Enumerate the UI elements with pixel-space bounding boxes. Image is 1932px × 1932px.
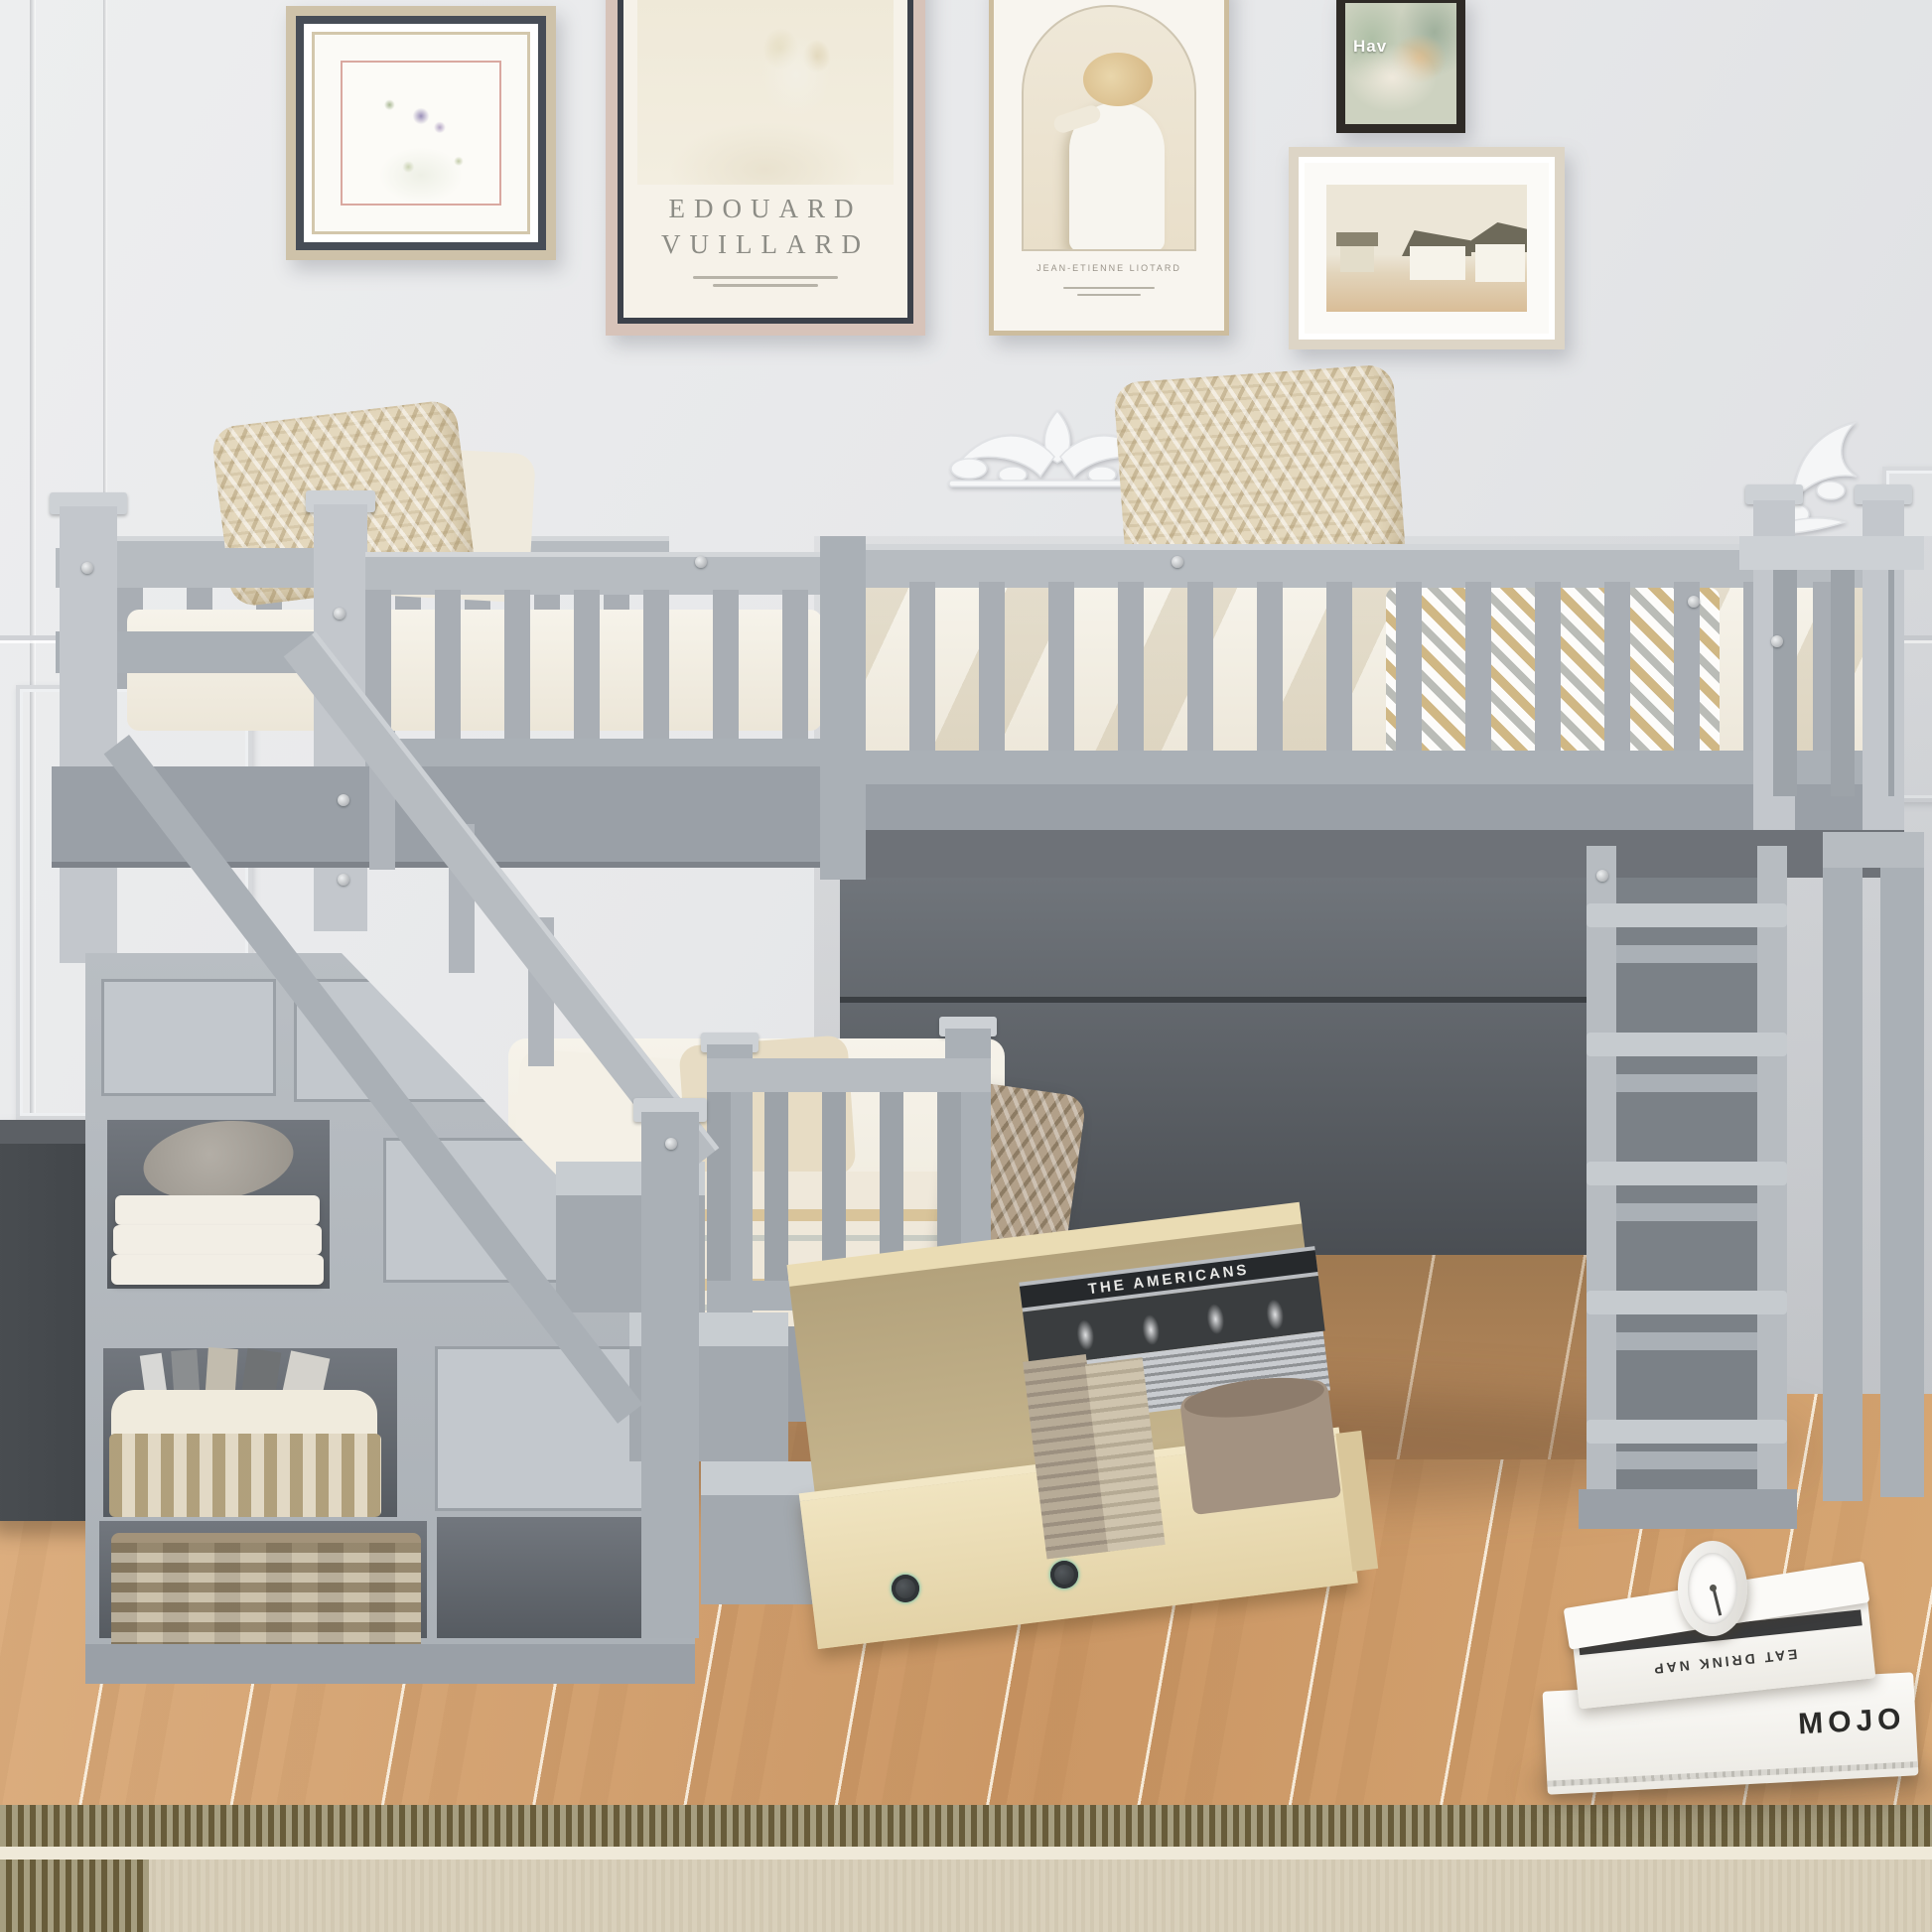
staircase-base-rail	[85, 1644, 699, 1684]
stair-newel-post	[641, 1112, 699, 1638]
frame-mat	[1305, 163, 1549, 334]
stair-cubby-basket	[103, 1348, 397, 1517]
picture-frame-poster: EDOUARD VUILLARD	[606, 0, 925, 336]
folded-towel	[115, 1195, 320, 1225]
rug-field	[0, 1860, 1932, 1932]
headboard-slats	[1773, 570, 1894, 796]
shelf-board	[1616, 1074, 1757, 1092]
shelf-board	[1616, 1203, 1757, 1221]
loft-deck-shadow	[840, 830, 1904, 878]
rug-corner-border	[0, 1860, 149, 1932]
loft-end-leg	[1823, 832, 1863, 1501]
portrait-figure-bonnet	[1083, 53, 1153, 106]
ladder-rung	[1587, 1162, 1787, 1185]
house-roof	[1336, 232, 1378, 246]
flower-vase-artwork	[637, 0, 894, 185]
ladder-rung	[1587, 903, 1787, 927]
loft-end-leg	[1880, 832, 1924, 1497]
village-artwork	[1326, 185, 1527, 312]
screw	[1596, 870, 1608, 882]
shelf-board	[1616, 1451, 1757, 1469]
analog-clock	[1678, 1541, 1747, 1636]
portrait-caption: JEAN-ETIENNE LIOTARD	[994, 263, 1224, 273]
portrait-caption-line	[1077, 294, 1141, 296]
botanical-artwork	[341, 61, 501, 206]
shelf-board	[1616, 945, 1757, 963]
loft-end-rail	[1823, 832, 1924, 868]
bedroom-photo: EDOUARD VUILLARD JEAN-ETIENNE LIOTARD Ha…	[0, 0, 1932, 1932]
rug-border-band	[0, 1805, 1932, 1847]
bottom-book-spine-text: MOJO	[1797, 1703, 1906, 1742]
loft-guardrail-slats	[840, 582, 1904, 753]
portrait-caption-line	[1063, 287, 1155, 289]
clock-center	[1710, 1585, 1717, 1591]
caster-wheel	[892, 1575, 919, 1602]
poster-artist-line2: VUILLARD	[623, 226, 907, 262]
ladder-rung	[1587, 1291, 1787, 1314]
drawer-seam	[840, 997, 1594, 1003]
bunk-front-slats	[365, 590, 832, 739]
screw	[334, 608, 345, 620]
cat-frame-text: Hav	[1353, 37, 1387, 57]
round-container	[1179, 1379, 1342, 1515]
picture-frame-portrait: JEAN-ETIENNE LIOTARD	[989, 0, 1229, 336]
ladder-rung	[1587, 1420, 1787, 1444]
center-post	[820, 536, 866, 880]
arched-portrait-artwork	[1022, 5, 1196, 251]
headboard-top-rail	[1739, 536, 1924, 570]
shelf-tower-base	[1579, 1489, 1797, 1529]
bunk-front-rail-bottom	[365, 739, 832, 768]
rope-basket	[109, 1434, 381, 1517]
screw	[695, 556, 707, 568]
screw	[1771, 635, 1783, 647]
screw	[81, 562, 93, 574]
stair-recessed-panel	[101, 979, 276, 1096]
picture-frame-cat: Hav	[1336, 0, 1465, 133]
house	[1340, 242, 1374, 272]
frame-inner-border	[296, 16, 546, 250]
poster-artist-line1: EDOUARD	[623, 191, 907, 226]
ladder-rung	[1587, 1033, 1787, 1056]
screw	[338, 874, 349, 886]
woven-rug	[0, 1805, 1932, 1932]
stair-cubby-towels	[107, 1120, 330, 1289]
poster-caption-line	[693, 276, 838, 279]
screw	[665, 1138, 677, 1150]
house	[1475, 244, 1525, 282]
poster-caption-line	[713, 284, 818, 287]
screw	[338, 794, 349, 806]
folded-towel	[113, 1225, 322, 1255]
shelf-board	[1616, 1332, 1757, 1350]
screw	[1172, 556, 1183, 568]
picture-frame-botanical	[286, 6, 556, 260]
picture-frame-landscape	[1289, 147, 1565, 349]
loft-guardrail-bottom	[840, 751, 1904, 784]
poster: EDOUARD VUILLARD	[618, 0, 913, 324]
screw	[1688, 596, 1700, 608]
house	[1410, 246, 1465, 280]
folded-towel	[111, 1255, 324, 1285]
caster-wheel	[1050, 1561, 1078, 1588]
bunk-corner-post	[60, 506, 117, 963]
basket-liner	[111, 1390, 377, 1440]
frame-mat	[312, 32, 530, 234]
shelf-tower-interior	[1616, 878, 1757, 1493]
rug-white-stripe	[0, 1847, 1932, 1860]
lower-guardrail-top	[707, 1058, 991, 1092]
bunk-front-rail	[365, 552, 832, 595]
